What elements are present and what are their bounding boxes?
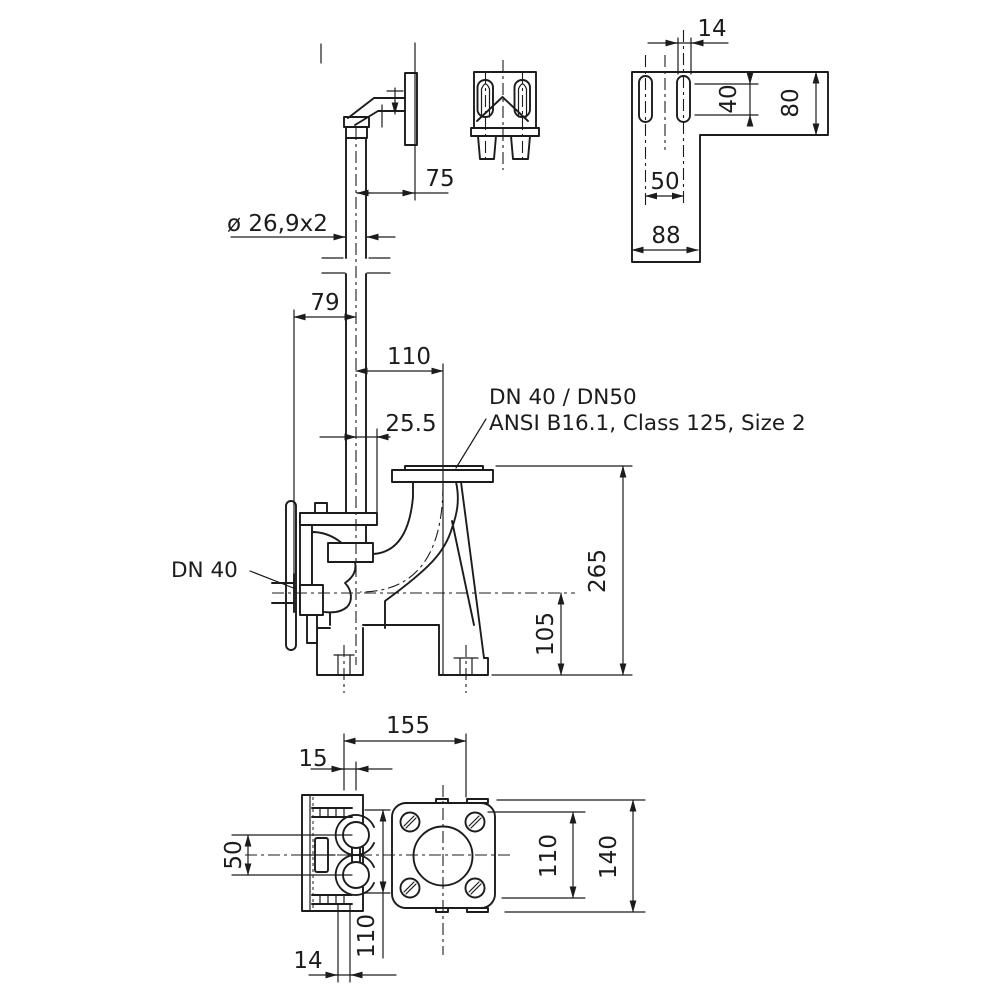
dim-50-bracket-group: 50 [646, 169, 684, 196]
pump-base [317, 625, 488, 675]
dim-79: 79 [310, 290, 339, 316]
side-view: 75 ø 26,9x2 79 110 25.5 265 105 [171, 43, 806, 693]
discharge-flange-callout: DN 40 / DN50 ANSI B16.1, Class 125, Size… [456, 385, 806, 468]
dim-80-bracket-group: 80 [778, 72, 816, 135]
label-pipe-diameter: ø 26,9x2 [227, 211, 328, 237]
dim-110-plan-body: 110 [354, 914, 380, 958]
leader-line [456, 419, 486, 468]
dim-88-bracket-group: 88 [632, 223, 698, 250]
dim-pipe-diameter-group: ø 26,9x2 [227, 211, 395, 237]
dim-50-plan: 50 [221, 840, 247, 869]
dim-155-group: 155 [344, 713, 466, 741]
dim-25-5-group: 25.5 [320, 411, 437, 437]
dim-50-plan-group: 50 [221, 835, 248, 875]
plan-backplate [302, 795, 363, 911]
dim-14-bracket: 14 [697, 16, 726, 42]
dim-110-side: 110 [387, 344, 431, 370]
dim-40-bracket: 40 [716, 84, 742, 113]
dim-75: 75 [425, 166, 454, 192]
dim-50-bracket: 50 [650, 169, 679, 195]
dim-14-plan: 14 [293, 948, 322, 974]
dim-25-5: 25.5 [385, 411, 436, 437]
dim-110-side-group: 110 [356, 344, 443, 371]
clamp-lower-arm [300, 585, 323, 615]
dim-110-plan-holes: 110 [536, 834, 562, 878]
label-inlet-dn40: DN 40 [171, 558, 238, 583]
dim-140-plan: 140 [596, 835, 622, 879]
bracket-front-view [471, 60, 539, 170]
dim-88-bracket: 88 [651, 223, 680, 249]
dim-80-bracket: 80 [778, 88, 804, 117]
dim-75-group: 75 [357, 166, 455, 193]
wall-bracket-side [348, 73, 417, 145]
pipe-coupling [328, 543, 373, 562]
dim-15-group: 15 [298, 746, 392, 772]
dim-265: 265 [585, 549, 611, 593]
dim-14-bracket-group: 14 [648, 16, 728, 43]
dim-105: 105 [533, 612, 559, 656]
inlet-callout: DN 40 [171, 558, 296, 589]
plan-view: 155 15 50 110 140 110 14 [221, 713, 645, 982]
dim-155: 155 [386, 713, 430, 739]
clamp-notch [315, 503, 327, 513]
dim-15: 15 [298, 746, 327, 772]
label-discharge-line1: DN 40 / DN50 [489, 385, 637, 410]
dim-110-plan-holes-group: 110 [536, 812, 573, 898]
dimension-drawing: 75 ø 26,9x2 79 110 25.5 265 105 [0, 0, 1000, 1000]
dim-40-bracket-group: 40 [716, 73, 750, 126]
dim-140-plan-group: 140 [596, 800, 633, 912]
label-discharge-line2: ANSI B16.1, Class 125, Size 2 [489, 411, 806, 436]
dim-265-group: 265 [585, 466, 623, 675]
wall-bracket-view: 14 40 80 50 88 [632, 16, 828, 262]
clamp-upper-arm [300, 513, 377, 525]
technical-drawing-page: 75 ø 26,9x2 79 110 25.5 265 105 [0, 0, 1000, 1000]
clamp-block [307, 615, 317, 643]
dim-105-group: 105 [533, 593, 561, 675]
dim-14-plan-group: 14 [293, 948, 396, 975]
plan-rails [312, 808, 352, 904]
elbow-outline [373, 482, 484, 658]
